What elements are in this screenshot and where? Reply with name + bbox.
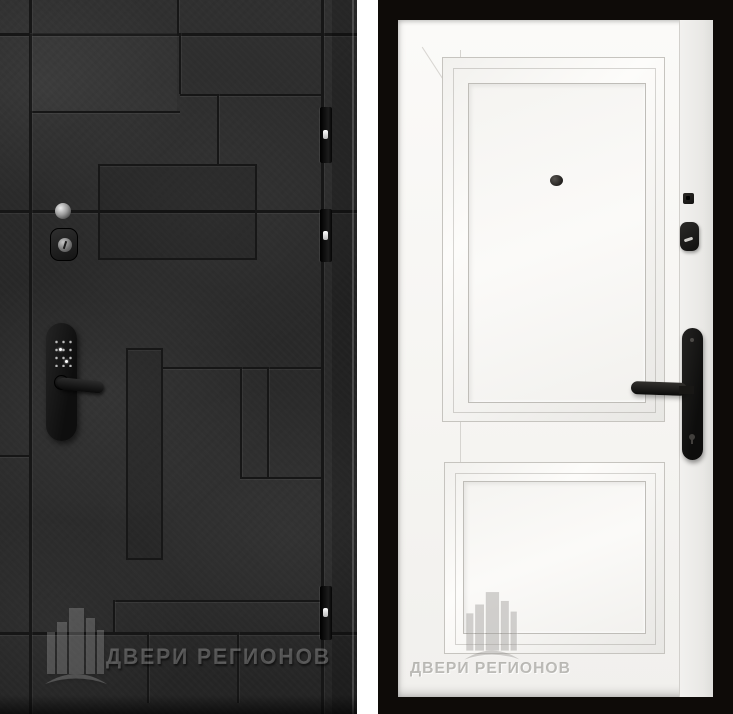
door-edge-highlight xyxy=(352,0,354,714)
watermark-text: ДВЕРИ РЕГИОНОВ xyxy=(106,644,341,670)
escutcheon-plate xyxy=(682,328,703,460)
cylinder-lock xyxy=(50,228,78,261)
keyway-slit xyxy=(63,241,67,249)
hinge xyxy=(320,586,332,640)
peephole xyxy=(550,175,563,186)
keyhole-slit xyxy=(691,439,693,444)
concrete-block xyxy=(126,348,163,560)
groove-line xyxy=(0,455,30,457)
watermark-text: ДВЕРИ РЕГИОНОВ xyxy=(410,660,616,678)
groove-line xyxy=(217,94,219,165)
corner-miter-line xyxy=(422,47,444,79)
deadbolt-dot xyxy=(686,196,690,200)
watermark-buildings-logo xyxy=(463,585,521,663)
keypad-lit-key xyxy=(59,348,62,351)
keypad-lit-key xyxy=(65,360,68,363)
deadbolt-indicator xyxy=(683,193,694,204)
groove-line xyxy=(30,111,180,113)
cylinder-core xyxy=(58,238,72,252)
hinge-pin xyxy=(323,231,328,240)
groove-line xyxy=(179,33,181,94)
groove-line xyxy=(240,477,322,479)
keyway-slot xyxy=(684,237,693,243)
door-interior-white-side: ДВЕРИ РЕГИОНОВ xyxy=(398,20,713,697)
hinge-pin xyxy=(323,130,328,139)
groove-line xyxy=(240,367,242,477)
concrete-block xyxy=(30,33,177,111)
cylinder-cover xyxy=(680,222,699,251)
product-photo: ДВЕРИ РЕГИОНОВ xyxy=(0,0,733,714)
peephole xyxy=(55,203,71,219)
hinge-pin xyxy=(323,608,328,617)
groove-line xyxy=(177,0,179,33)
lever-handle-neck xyxy=(679,386,694,394)
concrete-block xyxy=(98,164,257,260)
door-exterior-dark-side: ДВЕРИ РЕГИОНОВ xyxy=(0,0,357,714)
smart-lock-keypad xyxy=(52,337,72,367)
groove-line xyxy=(180,94,322,96)
upper-door-panel xyxy=(442,57,665,422)
upper-panel-recess xyxy=(468,83,646,403)
smart-lock xyxy=(46,323,77,441)
hinge xyxy=(320,107,332,163)
door-frame-black: ДВЕРИ РЕГИОНОВ xyxy=(378,0,733,714)
groove-line xyxy=(113,600,322,602)
groove-line xyxy=(113,600,115,632)
watermark-buildings-logo xyxy=(44,600,108,688)
hinge xyxy=(320,209,332,262)
groove-line xyxy=(267,367,269,477)
screw xyxy=(690,338,694,342)
door-bottom-shadow xyxy=(0,695,357,714)
groove-line xyxy=(163,367,322,369)
